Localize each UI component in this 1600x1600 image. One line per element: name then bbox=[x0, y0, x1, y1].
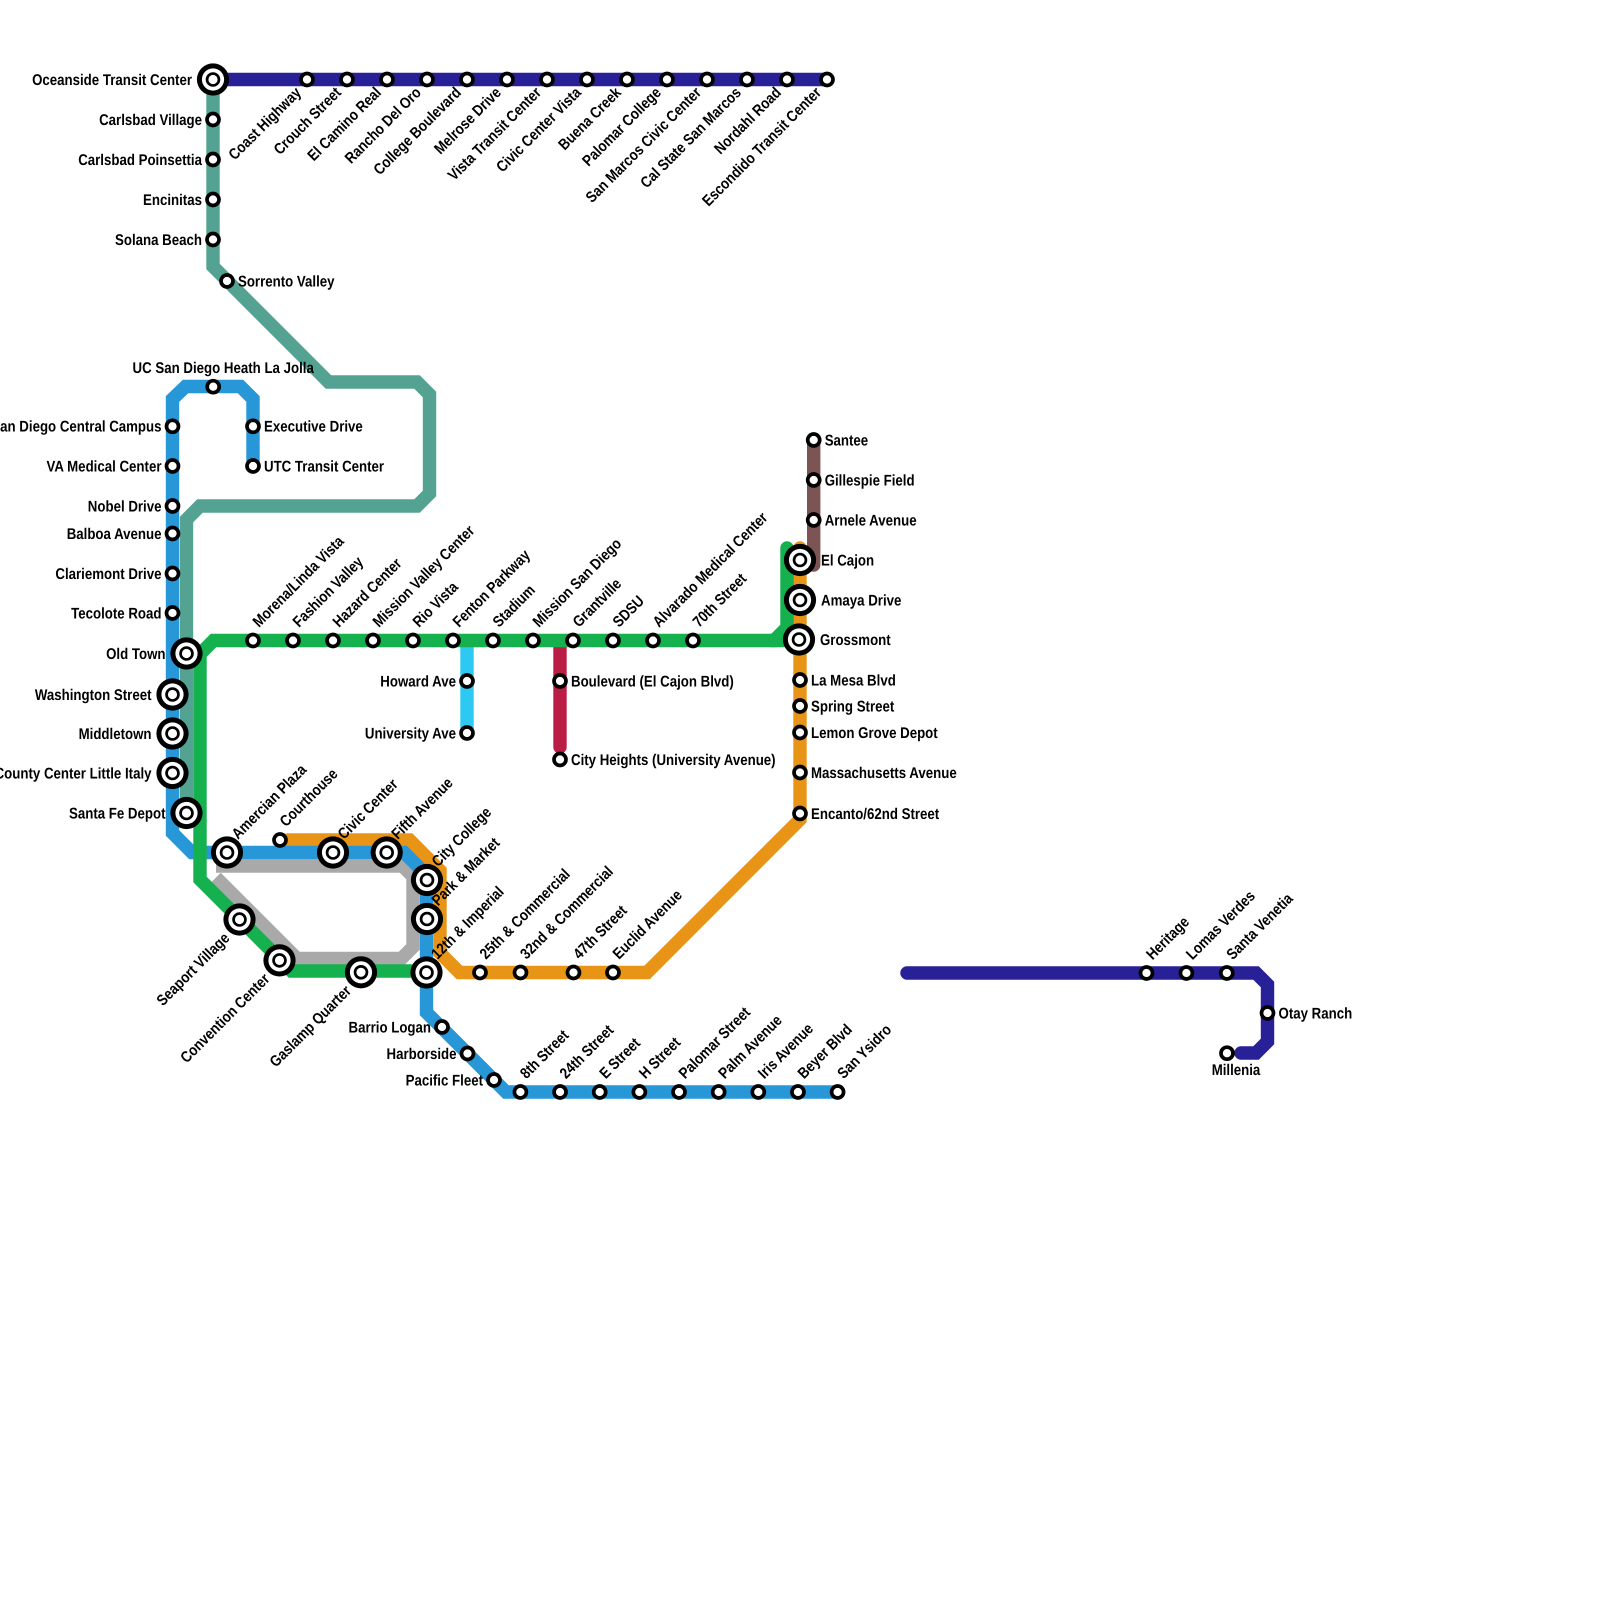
svg-text:Sorrento Valley: Sorrento Valley bbox=[238, 273, 335, 290]
svg-text:Tecolote Road: Tecolote Road bbox=[71, 605, 161, 622]
svg-text:Santee: Santee bbox=[825, 432, 869, 449]
svg-text:Encinitas: Encinitas bbox=[143, 192, 202, 209]
svg-text:Nobel Drive: Nobel Drive bbox=[88, 498, 162, 515]
svg-text:Washington Street: Washington Street bbox=[35, 687, 152, 704]
svg-text:Arnele Avenue: Arnele Avenue bbox=[825, 512, 917, 529]
svg-text:Clariemont Drive: Clariemont Drive bbox=[55, 566, 161, 583]
svg-text:Heritage: Heritage bbox=[1143, 914, 1193, 964]
svg-text:Seaport Village: Seaport Village bbox=[154, 930, 234, 1010]
svg-text:Gillespie Field: Gillespie Field bbox=[825, 472, 915, 489]
svg-text:H Street: H Street bbox=[636, 1034, 684, 1082]
svg-text:Millenia: Millenia bbox=[1212, 1062, 1261, 1079]
svg-text:UTC Transit Center: UTC Transit Center bbox=[264, 458, 384, 475]
svg-text:Old Town: Old Town bbox=[106, 646, 165, 663]
svg-text:Lemon Grove Depot: Lemon Grove Depot bbox=[811, 725, 938, 742]
svg-text:UC San Diego Heath La Jolla: UC San Diego Heath La Jolla bbox=[133, 360, 315, 377]
svg-text:Massachusetts Avenue: Massachusetts Avenue bbox=[811, 765, 957, 782]
svg-text:University Ave: University Ave bbox=[365, 725, 456, 742]
svg-text:SDSU: SDSU bbox=[610, 593, 648, 631]
svg-text:Gaslamp Quarter: Gaslamp Quarter bbox=[267, 983, 355, 1071]
svg-text:Encanto/62nd Street: Encanto/62nd Street bbox=[811, 806, 939, 823]
svg-text:La Mesa Blvd: La Mesa Blvd bbox=[811, 672, 896, 689]
svg-text:Fifth Avenue: Fifth Avenue bbox=[389, 775, 457, 843]
svg-text:Balboa Avenue: Balboa Avenue bbox=[67, 526, 162, 543]
svg-text:Barrio Logan: Barrio Logan bbox=[349, 1019, 432, 1036]
svg-text:Carlsbad Poinsettia: Carlsbad Poinsettia bbox=[78, 152, 202, 169]
svg-text:VA Medical Center: VA Medical Center bbox=[47, 458, 162, 475]
svg-text:Spring Street: Spring Street bbox=[811, 698, 894, 715]
svg-text:San Diego Central Campus: San Diego Central Campus bbox=[0, 419, 161, 436]
svg-text:El Cajon: El Cajon bbox=[821, 552, 874, 569]
svg-text:Amaya Drive: Amaya Drive bbox=[821, 592, 902, 609]
svg-text:Solana Beach: Solana Beach bbox=[115, 232, 202, 249]
svg-text:County Center Little Italy: County Center Little Italy bbox=[0, 765, 152, 782]
svg-text:City Heights (University Avenu: City Heights (University Avenue) bbox=[571, 752, 776, 769]
svg-text:Oceanside Transit Center: Oceanside Transit Center bbox=[32, 72, 192, 89]
svg-text:Lomas Verdes: Lomas Verdes bbox=[1183, 888, 1259, 964]
svg-text:Convention Center: Convention Center bbox=[177, 971, 273, 1067]
svg-text:Pacific Fleet: Pacific Fleet bbox=[406, 1072, 483, 1089]
svg-text:Otay Ranch: Otay Ranch bbox=[1279, 1005, 1353, 1022]
svg-text:Boulevard (El Cajon Blvd): Boulevard (El Cajon Blvd) bbox=[571, 673, 734, 690]
svg-text:Executive Drive: Executive Drive bbox=[264, 419, 363, 436]
svg-text:Harborside: Harborside bbox=[387, 1046, 457, 1063]
svg-text:Middletown: Middletown bbox=[79, 726, 152, 743]
svg-text:Howard Ave: Howard Ave bbox=[380, 673, 456, 690]
svg-text:Carlsbad Village: Carlsbad Village bbox=[99, 112, 202, 129]
svg-text:Santa Fe Depot: Santa Fe Depot bbox=[69, 805, 166, 822]
svg-text:Grossmont: Grossmont bbox=[820, 632, 891, 649]
